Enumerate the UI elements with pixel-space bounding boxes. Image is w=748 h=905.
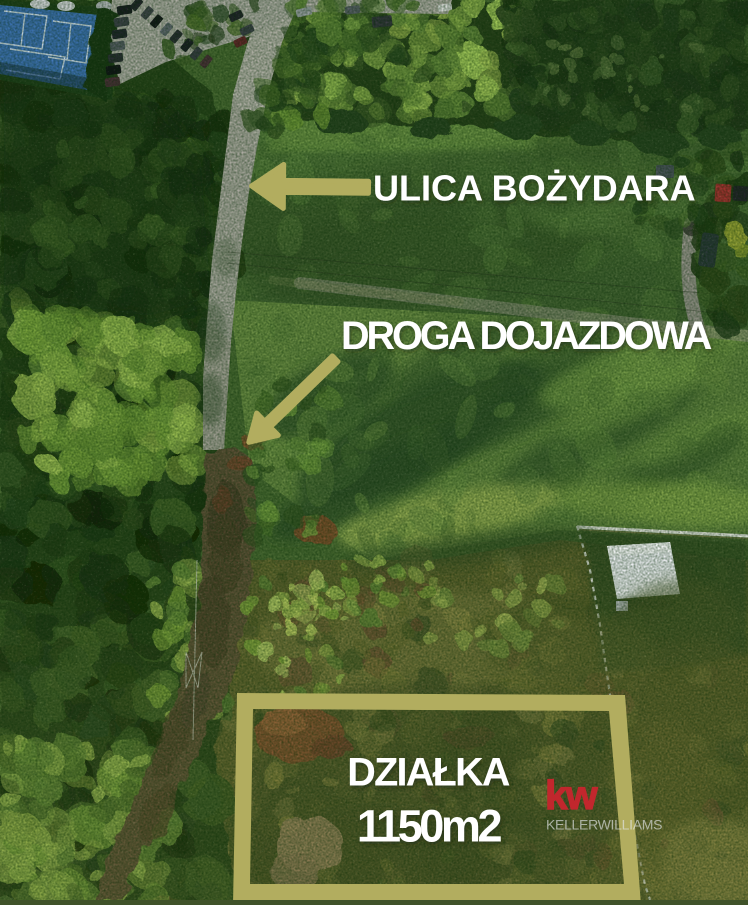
svg-text:DZIAŁKA: DZIAŁKA [347,751,510,795]
svg-text:ULICA BOŻYDARA: ULICA BOŻYDARA [373,168,696,209]
svg-text:kw: kw [545,772,598,818]
svg-text:KELLERWILLIAMS: KELLERWILLIAMS [546,817,662,833]
svg-text:1150m2: 1150m2 [357,801,502,852]
svg-text:DROGA DOJAZDOWA: DROGA DOJAZDOWA [341,314,712,358]
